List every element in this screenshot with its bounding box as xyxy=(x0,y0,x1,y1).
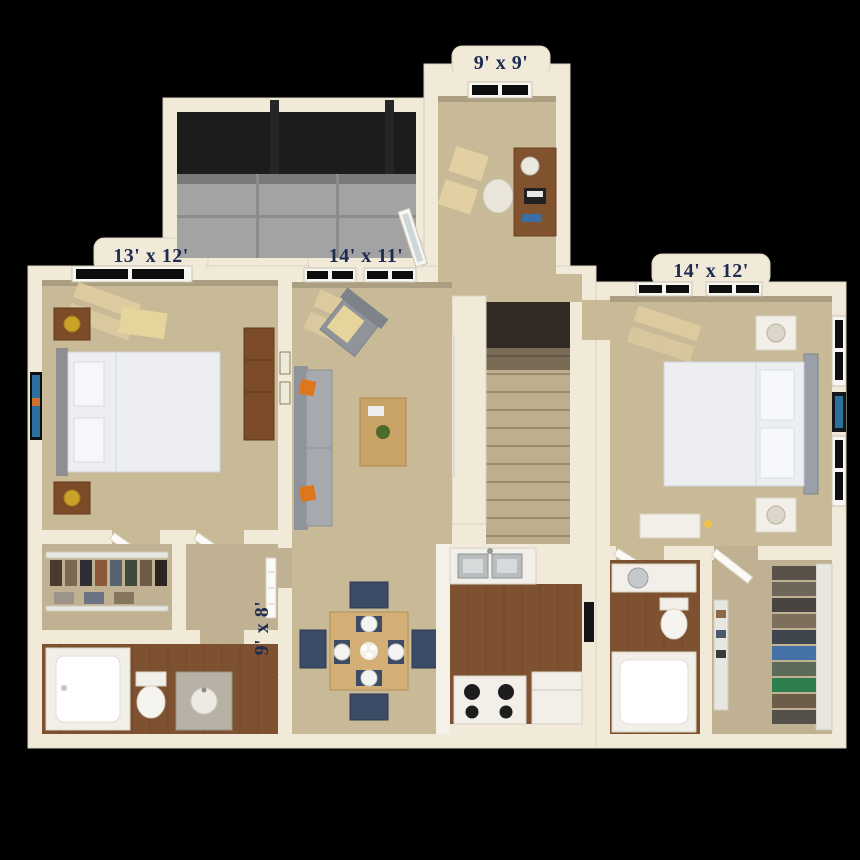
den-window-pane2 xyxy=(502,85,528,95)
dining-chair-right xyxy=(412,630,438,668)
bathroom-left xyxy=(42,644,278,734)
shoe1 xyxy=(716,610,726,618)
hallway-left xyxy=(186,544,292,644)
patio-post-left xyxy=(270,100,279,180)
closet-right-shelf-rail xyxy=(816,564,832,730)
brass-lamp-bottom xyxy=(64,490,80,506)
bedroom-right-sidewindow-pane1a xyxy=(835,320,843,348)
plate-right xyxy=(388,644,404,660)
closet-left-lower-shelf xyxy=(46,606,168,611)
flower1 xyxy=(361,645,367,651)
den-dim-text: 9' x 9' xyxy=(474,52,529,74)
stairwell-dark-top xyxy=(486,302,570,348)
den-window-pane1 xyxy=(472,85,498,95)
kitchen-dim-text: 9' x 8' xyxy=(251,601,273,656)
bed-left-headboard xyxy=(56,348,68,476)
sink-basin1-inner xyxy=(463,559,483,573)
bathtub-right-basin xyxy=(620,660,688,724)
bedroom-right xyxy=(610,282,846,582)
toilet-right-bowl xyxy=(661,609,687,639)
living-window-pane2a xyxy=(367,271,388,279)
closet-left-stack2 xyxy=(84,592,104,604)
bedroom-left-window-pane1 xyxy=(76,269,128,279)
kitchen-wall-niche xyxy=(584,602,594,642)
floor-plan-svg: 9' x 9' 13' x 12' 14' x 11' 14' x 12' 9'… xyxy=(0,0,860,860)
flower2 xyxy=(370,645,376,651)
bed-right-pillow2 xyxy=(760,428,794,478)
burner3 xyxy=(466,706,479,719)
bedroom-right-dim-text: 14' x 12' xyxy=(673,260,749,282)
burner4 xyxy=(500,706,513,719)
bedroom-right-art xyxy=(835,396,843,428)
bedroom-left-window-pane2 xyxy=(132,269,184,279)
toilet-right-tank xyxy=(660,598,688,610)
bedroom-left-dim-text: 13' x 12' xyxy=(113,245,189,267)
living-window-pane2b xyxy=(392,271,413,279)
sink-faucet xyxy=(487,548,493,554)
vanity-right-sink xyxy=(628,568,648,588)
bed-right-pillow1 xyxy=(760,370,794,420)
stairwell-dark-fade xyxy=(486,348,570,370)
closet-left-stack3 xyxy=(114,592,134,604)
vanity-right xyxy=(612,564,696,592)
toilet-left-tank xyxy=(136,672,166,686)
floor-plan-stage: 9' x 9' 13' x 12' 14' x 11' 14' x 12' 9'… xyxy=(0,0,860,860)
shoe3 xyxy=(716,650,726,658)
den xyxy=(438,82,556,274)
dining-chair-left xyxy=(300,630,326,668)
brass-lamp-top xyxy=(64,316,80,332)
bedroom-right-sidewindow-pane2b xyxy=(835,472,843,500)
toilet-left-bowl xyxy=(137,686,165,718)
range-stove xyxy=(454,676,526,724)
laptop-screen xyxy=(527,191,543,197)
patio-floor-joint-h xyxy=(177,215,416,218)
shoe2 xyxy=(716,630,726,638)
kitchen-dim-tab-seam xyxy=(276,582,290,674)
coffee-table-magazine xyxy=(368,406,384,416)
lamp-right-bottom xyxy=(767,506,785,524)
bedroom-right-shadow xyxy=(610,296,832,302)
bedroom-right-sidewindow-pane1b xyxy=(835,352,843,380)
patio-floor-shadow xyxy=(177,174,416,184)
burner2 xyxy=(498,684,514,700)
plate-left xyxy=(334,644,350,660)
kitchen-left-wall-counter-face xyxy=(436,544,450,734)
bedroom-right-window-pane1a xyxy=(639,285,662,293)
closet-left-top-shelf xyxy=(46,552,168,558)
plate-top xyxy=(361,616,377,632)
living-shadow xyxy=(292,282,452,288)
bedroom-right-window-pane2a xyxy=(709,285,732,293)
bedroom-right-window-pane1b xyxy=(666,285,689,293)
vanity-left-faucet xyxy=(202,688,207,693)
orange-pillow-bottom xyxy=(299,485,316,502)
orange-pillow-top xyxy=(298,379,316,397)
patio-screen-wall xyxy=(177,112,416,174)
bathroom-right xyxy=(610,560,700,734)
coffee-table-plant xyxy=(376,425,390,439)
bed-left-pillow2 xyxy=(74,418,104,462)
bookcase xyxy=(244,328,274,440)
living-window-pane1b xyxy=(332,271,353,279)
walk-in-closet-right xyxy=(712,546,832,734)
hall-to-dining-opening xyxy=(278,548,292,588)
bed-right-headboard xyxy=(804,354,818,494)
flower3 xyxy=(366,652,372,658)
desk-lamp xyxy=(521,157,539,175)
bed-left-pillow1 xyxy=(74,362,104,406)
closet-left-stack1 xyxy=(54,592,74,604)
bath-left-door-opening xyxy=(200,630,244,644)
living-dim-text: 14' x 11' xyxy=(329,245,404,267)
stair-side-wall xyxy=(452,296,486,524)
sink-basin2-inner xyxy=(497,559,517,573)
walk-in-closet-left xyxy=(42,544,172,630)
refrigerator xyxy=(532,672,582,724)
dining-chair-top xyxy=(350,582,388,608)
bedroom-right-dresser xyxy=(640,514,700,538)
bedroom-left xyxy=(30,266,278,567)
candle xyxy=(704,520,712,528)
desk-books xyxy=(522,214,542,222)
lamp-right-top xyxy=(767,324,785,342)
screened-patio xyxy=(177,100,427,267)
wall-frame1 xyxy=(280,352,290,374)
bedroom-right-sidewindow-pane2a xyxy=(835,440,843,468)
living-window-pane1a xyxy=(307,271,328,279)
bedroom-right-window-pane2b xyxy=(736,285,759,293)
desk-chair xyxy=(483,179,513,213)
hall-to-bedroom-opening xyxy=(582,300,610,340)
bedroom-left-art-accent xyxy=(32,398,40,406)
wall-frame2 xyxy=(280,382,290,404)
burner1 xyxy=(464,684,480,700)
dining-chair-bottom xyxy=(350,694,388,720)
plate-bottom xyxy=(361,670,377,686)
bathtub-left-drain xyxy=(61,685,67,691)
patio-post-right xyxy=(385,100,394,180)
